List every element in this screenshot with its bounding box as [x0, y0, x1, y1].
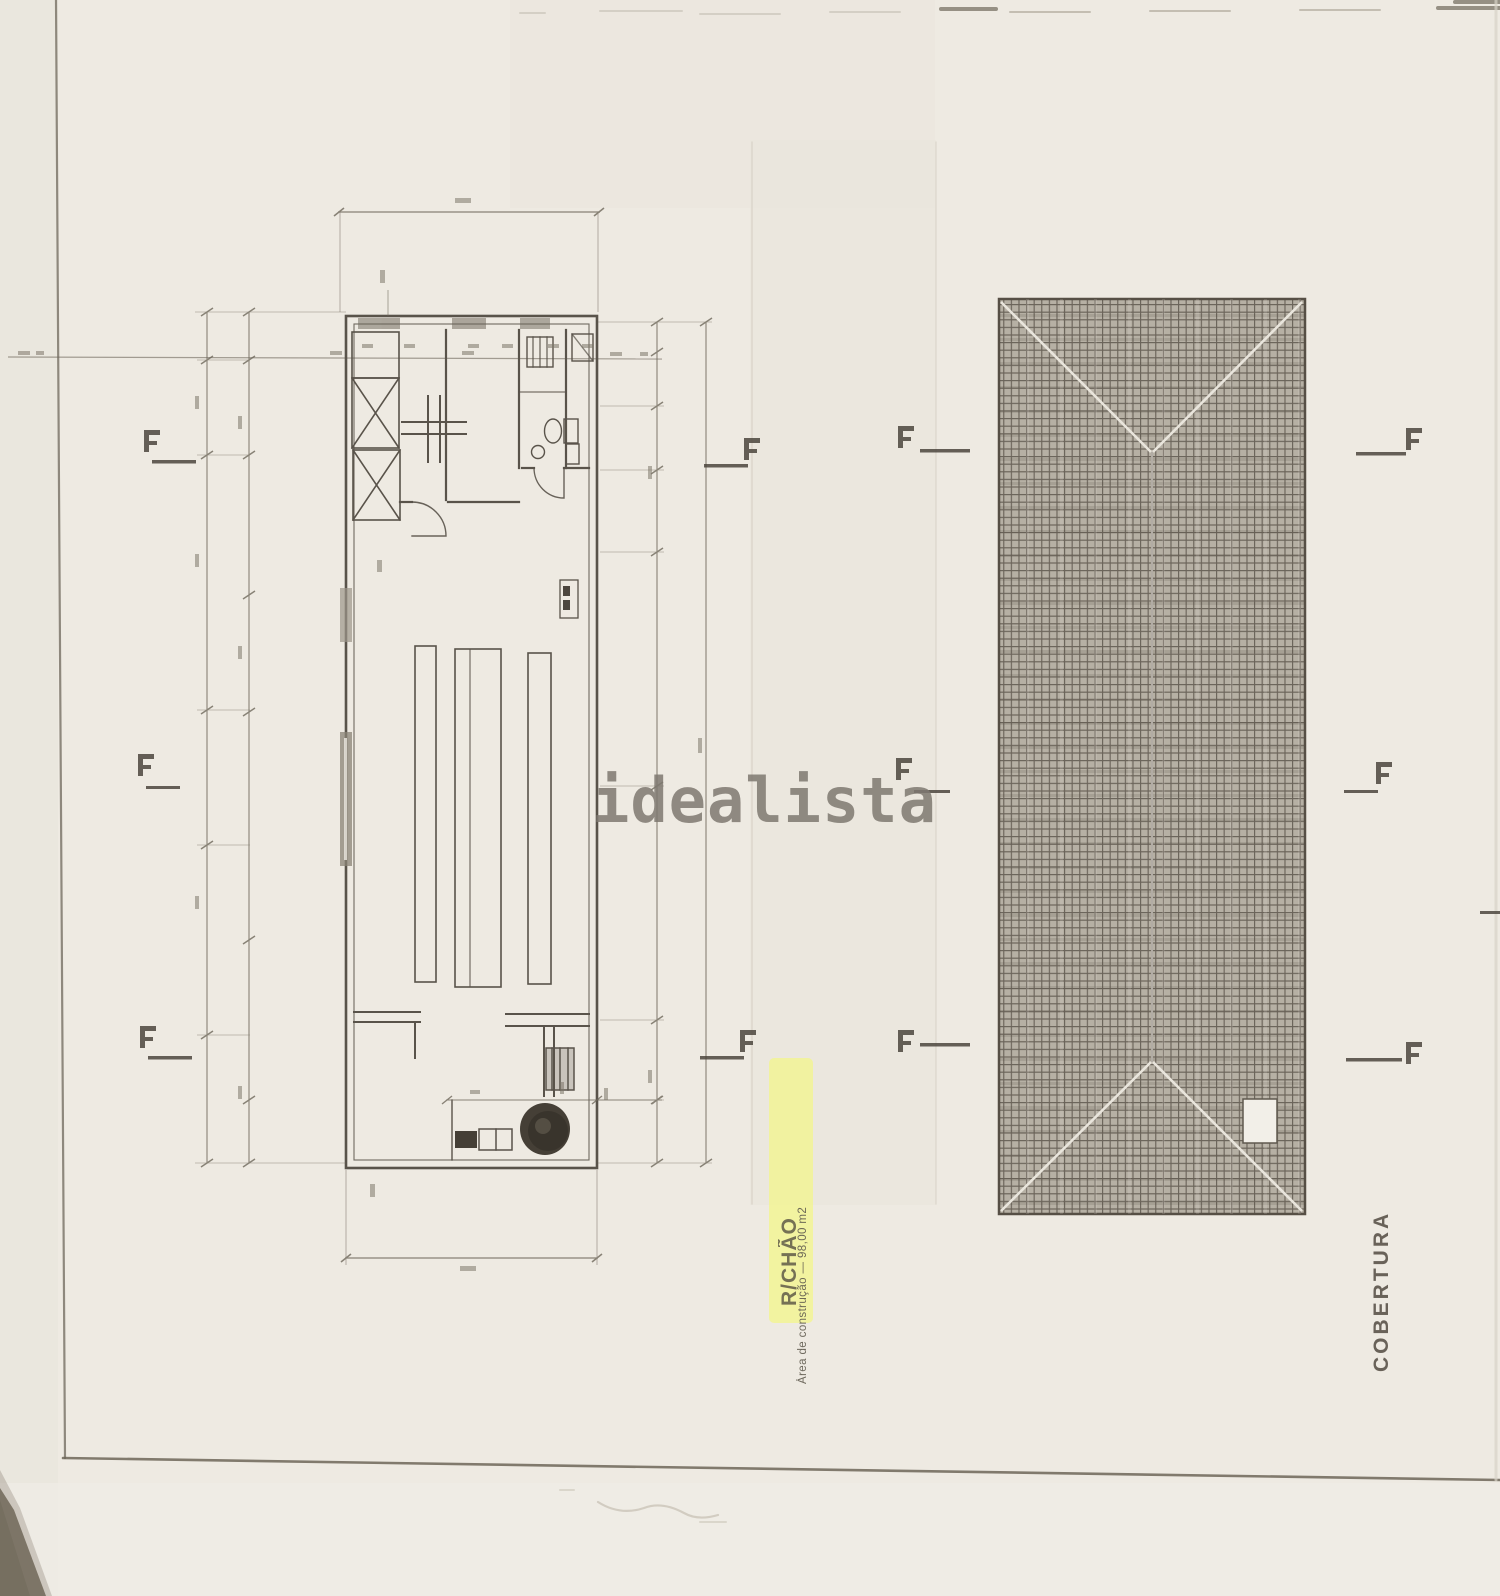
- floor-plan-area-caption: Área de construção — 98,00 m2: [796, 1207, 809, 1384]
- dim-label-mark: [195, 896, 199, 909]
- dim-label-mark: [604, 1088, 608, 1100]
- bottom-fixtures: [455, 1048, 574, 1155]
- floor-plan-dimensions: [195, 208, 712, 1265]
- bench-2: [455, 649, 501, 987]
- section-marker: [1344, 762, 1392, 793]
- stray-right-edge-tick: [1480, 911, 1500, 914]
- dim-label-mark: [698, 738, 702, 753]
- dim-label-mark: [330, 351, 342, 355]
- section-marker: [700, 1030, 756, 1060]
- scan-light-band-top: [510, 0, 935, 208]
- bath-fixtures: [527, 334, 593, 464]
- dark-small-box: [455, 1131, 477, 1148]
- scan-light-band-right-of-plan: [750, 140, 936, 1205]
- dim-label-mark: [380, 270, 385, 283]
- dim-stove-line: [442, 1096, 662, 1104]
- top-wall-hatch: [358, 318, 550, 329]
- dim-chain-right-inner: [651, 318, 663, 1167]
- paper-below-border: [0, 1483, 1500, 1596]
- top-edge-dark-dashes: [941, 2, 1500, 9]
- wall-fixture-panel: [560, 580, 578, 618]
- plan-drawing: idealista R/CHÃO Área de construção — 98…: [0, 0, 1500, 1596]
- bench-1: [415, 646, 436, 982]
- wall-plus-junction: [402, 396, 466, 462]
- dim-label-mark: [640, 352, 648, 356]
- floor-plan: [340, 316, 597, 1168]
- dim-label-mark: [460, 1266, 476, 1271]
- section-marker: [138, 754, 180, 789]
- roof-plan: [999, 299, 1305, 1214]
- door-arc-hall: [412, 502, 446, 536]
- dim-label-mark: [455, 198, 471, 203]
- section-marker: [1346, 1042, 1422, 1064]
- section-marker: [140, 1026, 192, 1060]
- toilet-bowl: [545, 419, 562, 443]
- dim-label-mark: [195, 554, 199, 567]
- section-marker: [144, 430, 196, 464]
- dim-label-mark: [548, 344, 559, 348]
- dim-chain-left-inner: [195, 308, 346, 1167]
- dim-label-mark: [362, 344, 373, 348]
- dim-label-mark: [462, 351, 474, 355]
- dim-chain-left-outer: [201, 308, 213, 1167]
- watermark-text: idealista: [592, 764, 937, 837]
- building-outer-wall: [346, 316, 597, 1168]
- small-fixture: [566, 444, 579, 464]
- dim-top: [334, 208, 604, 316]
- dim-label-mark: [648, 466, 652, 479]
- section-cut-line: [8, 357, 662, 359]
- dim-label-mark: [470, 1090, 480, 1094]
- dim-chain-right-overall: [598, 318, 712, 1167]
- hall-benches: [415, 646, 551, 987]
- chimney-opening: [1243, 1099, 1277, 1143]
- dim-label-mark: [195, 396, 199, 409]
- dim-label-mark: [238, 1086, 242, 1099]
- dim-label-mark: [468, 344, 479, 348]
- dim-label-mark: [610, 352, 622, 356]
- page-bottom-border-line: [63, 1458, 1500, 1480]
- dim-label-mark: [648, 1070, 652, 1083]
- stairwell: [352, 332, 400, 520]
- roof-plan-label: COBERTURA: [1370, 1211, 1393, 1372]
- sink: [532, 446, 545, 459]
- dim-label-mark: [377, 560, 382, 572]
- dim-label-mark: [582, 344, 593, 348]
- section-marker: [1356, 428, 1422, 456]
- bench-3: [528, 653, 551, 984]
- dim-label-mark: [238, 416, 242, 429]
- dim-label-mark: [36, 351, 44, 355]
- dim-label-mark: [18, 351, 30, 355]
- paper-left-margin-strip: [0, 0, 58, 1596]
- scanned-floorplan-sheet: idealista R/CHÃO Área de construção — 98…: [0, 0, 1500, 1596]
- dim-label-mark: [404, 344, 415, 348]
- dim-label-mark: [502, 344, 513, 348]
- dim-bottom: [341, 1170, 602, 1265]
- dim-label-mark: [370, 1184, 375, 1197]
- dim-label-mark: [560, 1082, 564, 1094]
- door-arc-bath: [534, 468, 564, 498]
- dim-label-mark: [238, 646, 242, 659]
